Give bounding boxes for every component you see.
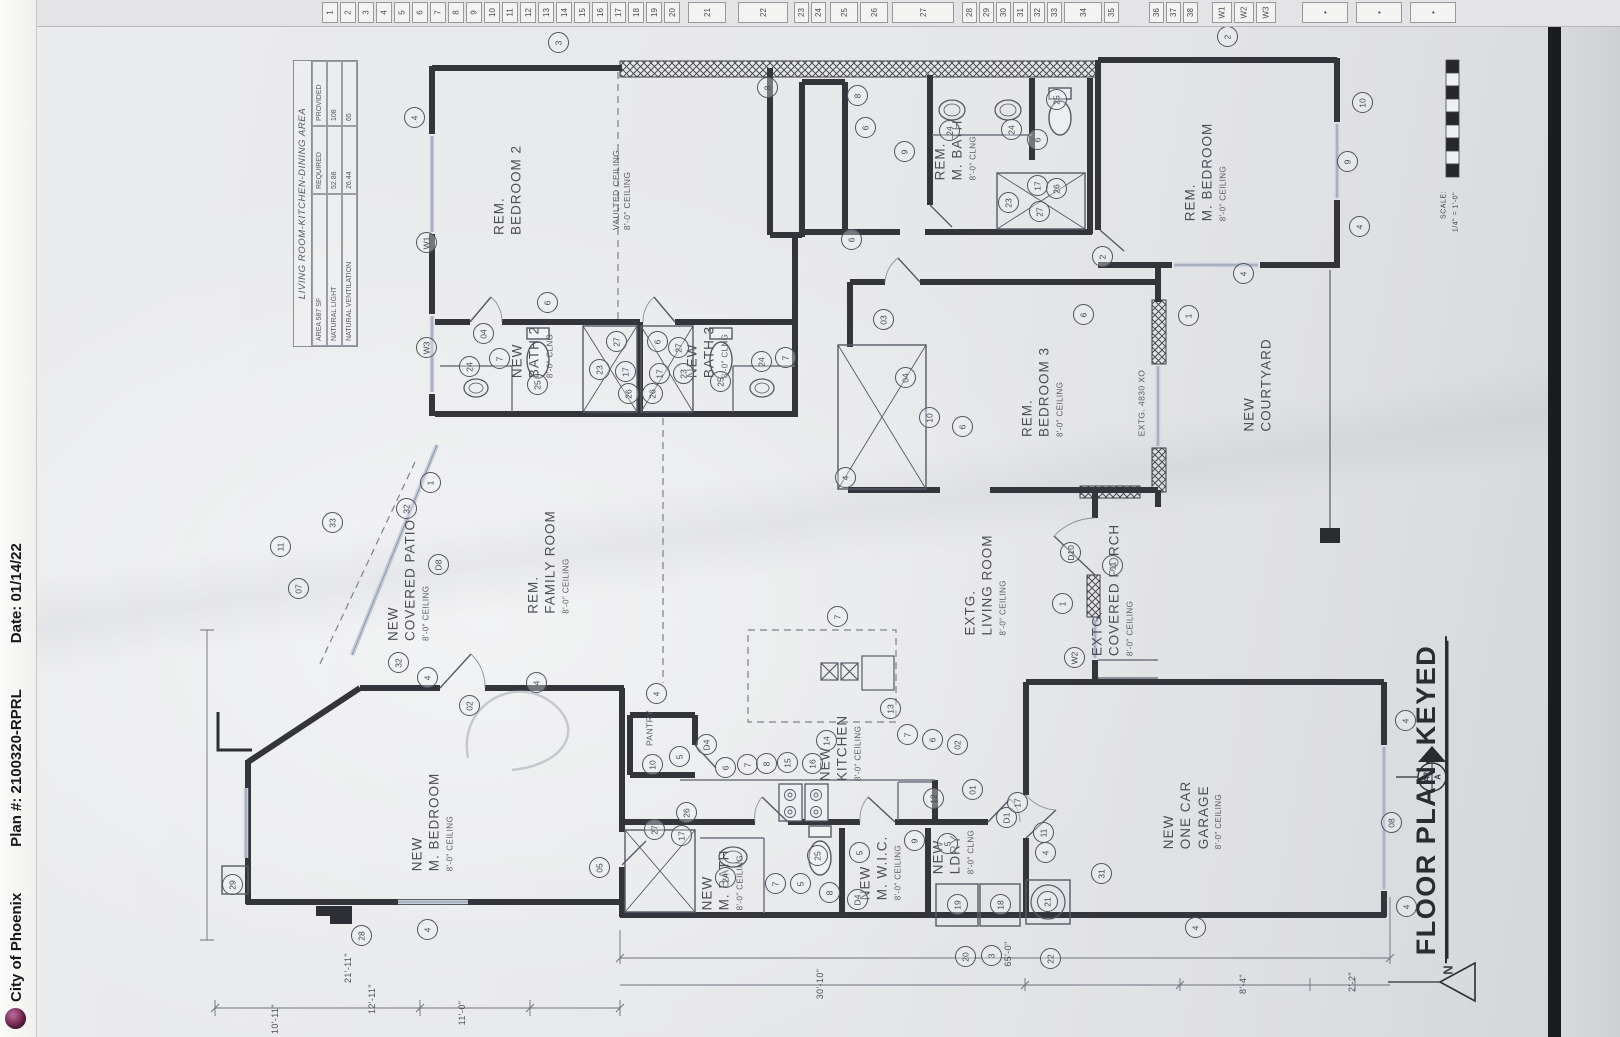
keyed-note-bubble-4: 4: [1349, 216, 1370, 237]
keyed-note-bubble-12: 12: [923, 788, 944, 809]
keyed-strip-cell: 17: [610, 2, 626, 23]
keyed-note-bubble-5: 5: [849, 842, 870, 863]
keyed-note-bubble-19: 19: [947, 894, 968, 915]
keyed-note-bubble-7: 7: [489, 348, 510, 369]
keyed-note-bubble-22: 22: [1040, 948, 1061, 969]
keyed-strip-cell: 19: [646, 2, 662, 23]
keyed-note-bubble-D4: D4: [847, 889, 868, 910]
keyed-note-bubble-6: 6: [715, 757, 736, 778]
keyed-note-bubble-25: 25: [807, 845, 828, 866]
keyed-strip-cell: W3: [1256, 2, 1276, 23]
keyed-note-bubble-D8: D8: [428, 554, 449, 575]
keyed-note-bubble-17: 17: [1027, 175, 1048, 196]
dimension-label: 8'-4": [1238, 974, 1248, 994]
keyed-note-bubble-11: 11: [270, 536, 291, 557]
keyed-note-bubble-1: 1: [420, 472, 441, 493]
room-label-extg-living-room: EXTG.LIVING ROOM8'-0" CEILING: [962, 534, 1009, 635]
room-label-new-bath-2: NEWBATH 28'-0" CLNG: [509, 326, 556, 378]
room-label-new-courtyard: NEWCOURTYARD: [1241, 338, 1276, 431]
keyed-note-bubble-2: 2: [1092, 246, 1113, 267]
keyed-note-bubble-1: 1: [1052, 593, 1073, 614]
room-label-rem-bedroom-3: REM.BEDROOM 38'-0" CEILING: [1019, 347, 1066, 437]
keyed-strip-cell: 29: [979, 2, 994, 23]
keyed-note-bubble-26: 26: [1046, 178, 1067, 199]
keyed-strip-cell: 13: [538, 2, 554, 23]
keyed-note-bubble-6: 6: [952, 416, 973, 437]
area-table-value: 52.88: [327, 126, 342, 194]
keyed-note-bubble-7: 7: [765, 873, 786, 894]
keyed-strip-cell: 2: [340, 2, 356, 23]
agency-sidebar: City of Phoenix Plan #: 2100320-RPRL Dat…: [0, 0, 37, 1037]
keyed-note-bubble-17: 17: [1007, 792, 1028, 813]
keyed-note-bubble-4: 4: [526, 672, 547, 693]
keyed-note-bubble-26: 26: [642, 383, 663, 404]
keyed-strip-cell: 7: [430, 2, 446, 23]
keyed-strip-cell: 21: [688, 2, 726, 23]
scanned-floor-plan-page: FLOOR PLAN- KEYED N A A2 SCALE: 1/4" = 1…: [0, 0, 1620, 1037]
keyed-strip-cell: •: [1356, 2, 1402, 23]
keyed-note-bubble-23: 23: [673, 363, 694, 384]
keyed-strip-cell: 26: [860, 2, 888, 23]
keyed-note-bubble-27: 27: [644, 819, 665, 840]
keyed-note-bubble-11: 11: [1102, 555, 1123, 576]
keyed-note-bubble-3: 3: [981, 945, 1002, 966]
keyed-strip-cell: •: [1410, 2, 1456, 23]
room-label-rem-m-bedroom: REM.M. BEDROOM8'-0" CEILING: [1182, 123, 1229, 222]
keyed-note-bubble-6: 6: [841, 229, 862, 250]
keyed-note-bubble-6: 6: [855, 117, 876, 138]
keyed-note-bubble-4: 4: [835, 467, 856, 488]
area-table-row-label: NATURAL VENTILATION: [342, 194, 357, 346]
agency-name: City of Phoenix: [8, 893, 25, 1002]
keyed-strip-cell: 16: [592, 2, 608, 23]
keyed-note-bubble-4: 4: [1395, 710, 1416, 731]
keyed-note-bubble-28: 28: [351, 925, 372, 946]
keyed-note-bubble-01: 01: [962, 779, 983, 800]
keyed-strip-cell: •: [1302, 2, 1348, 23]
keyed-note-bubble-6: 6: [1027, 129, 1048, 150]
keyed-strip-cell: 20: [664, 2, 680, 23]
agency-stamp-text: City of Phoenix Plan #: 2100320-RPRL Dat…: [8, 543, 25, 1002]
keyed-note-bubble-4: 4: [404, 107, 425, 128]
keyed-note-bubble-11: 11: [1033, 822, 1054, 843]
keyed-note-bubble-W1: W1: [416, 232, 437, 253]
keyed-strip-cell: 4: [376, 2, 392, 23]
keyed-strip-cell: 33: [1047, 2, 1062, 23]
keyed-strip-cell: 18: [628, 2, 644, 23]
keyed-note-bubble-6: 6: [1073, 304, 1094, 325]
keyed-note-bubble-5: 5: [937, 833, 958, 854]
keyed-note-bubble-25: 25: [1046, 89, 1067, 110]
keyed-note-bubble-02: 02: [947, 734, 968, 755]
dimension-label: 2'-2": [1347, 972, 1357, 992]
keyed-note-bubble-15: 15: [777, 752, 798, 773]
dimension-label: 10'-11": [270, 1004, 280, 1034]
section-marker-number: A2: [1423, 772, 1432, 782]
keyed-note-bubble-24: 24: [1001, 119, 1022, 140]
keyed-note-bubble-32: 32: [388, 652, 409, 673]
annotation-overlay: FLOOR PLAN- KEYED N A A2 SCALE: 1/4" = 1…: [0, 0, 1620, 1037]
keyed-note-bubble-27: 27: [606, 331, 627, 352]
room-label-rem-bedroom-2: REM.BEDROOM 2: [491, 145, 526, 235]
keyed-note-bubble-17: 17: [649, 363, 670, 384]
keyed-note-bubble-4: 4: [1035, 842, 1056, 863]
plan-number: Plan #: 2100320-RPRL: [8, 689, 25, 847]
keyed-note-bubble-7: 7: [897, 724, 918, 745]
keyed-strip-cell: 8: [448, 2, 464, 23]
dimension-label: 30'-10": [815, 969, 825, 1000]
keyed-note-bubble-8: 8: [756, 753, 777, 774]
room-label-extg-window-4830: EXTG. 4830 XO: [1137, 370, 1148, 437]
keyed-note-bubble-D10: D10: [1060, 542, 1081, 563]
keyed-strip-cell: 15: [574, 2, 590, 23]
keyed-note-bubble-24: 24: [459, 356, 480, 377]
keyed-note-bubble-10: 10: [642, 754, 663, 775]
keyed-note-bubble-D4: D4: [696, 734, 717, 755]
keyed-strip-cell: 14: [556, 2, 572, 23]
keyed-note-bubble-32: 32: [396, 498, 417, 519]
keyed-note-bubble-5: 5: [790, 873, 811, 894]
dimension-label: 12'-11": [367, 984, 377, 1014]
city-logo-icon: [5, 1008, 26, 1029]
keyed-strip-cell: 34: [1064, 2, 1102, 23]
dimension-label: 21'-11": [343, 953, 353, 983]
area-table-value: 108: [327, 61, 342, 126]
keyed-strip-cell: 32: [1030, 2, 1045, 23]
keyed-note-bubble-05: 05: [589, 857, 610, 878]
area-table-col-required: REQUIRED: [312, 126, 327, 194]
scale-value: 1/4" = 1'-0": [1453, 192, 1460, 232]
dimension-label: 11'-0": [457, 1001, 467, 1026]
keyed-note-bubble-8: 8: [757, 77, 778, 98]
keyed-note-bubble-W2: W2: [1064, 647, 1085, 668]
keyed-note-bubble-4: 4: [417, 667, 438, 688]
keyed-note-bubble-7: 7: [737, 754, 758, 775]
keyed-note-bubble-24: 24: [715, 867, 736, 888]
keyed-note-bubble-23: 23: [998, 192, 1019, 213]
keyed-note-bubble-1: 1: [1178, 305, 1199, 326]
keyed-strip-cell: 37: [1166, 2, 1181, 23]
keyed-note-bubble-17: 17: [615, 361, 636, 382]
keyed-strip-cell: W1: [1212, 2, 1232, 23]
keyed-strip-cell: 31: [1013, 2, 1028, 23]
area-table-value: 26.44: [342, 126, 357, 194]
keyed-note-bubble-33: 33: [322, 512, 343, 533]
keyed-note-bubble-04: 04: [895, 367, 916, 388]
keyed-note-bubble-02: 02: [459, 695, 480, 716]
keyed-note-bubble-6: 6: [647, 331, 668, 352]
area-table: LIVING ROOM-KITCHEN-DINING AREA AREA 587…: [293, 60, 395, 347]
keyed-strip-cell: 1: [322, 2, 338, 23]
room-label-extg-covered-porch: EXTG.COVERED PORCH8'-0" CEILING: [1089, 524, 1136, 656]
keyed-note-bubble-6: 6: [537, 292, 558, 313]
keyed-strip-cell: 3: [358, 2, 374, 23]
keyed-note-bubble-13: 13: [880, 698, 901, 719]
keyed-strip-cell: 12: [520, 2, 536, 23]
room-label-new-covered-patio: NEWCOVERED PATIO8'-0" CEILING: [385, 519, 432, 641]
keyed-strip-cell: 35: [1104, 2, 1119, 23]
scale-label: SCALE:: [1441, 191, 1448, 219]
keyed-strip-cell: 25: [830, 2, 858, 23]
area-table-row-label: NATURAL LIGHT: [327, 194, 342, 346]
keyed-strip-cell: 30: [996, 2, 1011, 23]
north-label: N: [1441, 965, 1456, 974]
keyed-note-bubble-17: 17: [671, 825, 692, 846]
section-marker-sheet: A: [1434, 774, 1443, 780]
keyed-note-bubble-2: 2: [1217, 26, 1238, 47]
drawing-title: FLOOR PLAN- KEYED: [1411, 637, 1447, 964]
keyed-note-bubble-27: 27: [1029, 201, 1050, 222]
keyed-note-bubble-04: 04: [473, 323, 494, 344]
keyed-note-bubble-4: 4: [1185, 917, 1206, 938]
keyed-notes-number-strip: 1234567891011121314151617181920212223242…: [0, 0, 1620, 27]
scan-right-margin: [1561, 26, 1620, 1037]
keyed-note-bubble-5: 5: [669, 746, 690, 767]
keyed-note-bubble-25: 25: [527, 374, 548, 395]
keyed-note-bubble-14: 14: [816, 730, 837, 751]
area-table-col-provided: PROVIDED: [312, 61, 327, 126]
area-table-title: LIVING ROOM-KITCHEN-DINING AREA: [293, 60, 311, 347]
keyed-note-bubble-10: 10: [1352, 92, 1373, 113]
area-table-value: 65: [342, 61, 357, 126]
room-label-new-one-car-garage: NEWONE CARGARAGE8'-0" CEILING: [1160, 781, 1224, 850]
keyed-note-bubble-6: 6: [922, 729, 943, 750]
keyed-note-bubble-9: 9: [904, 830, 925, 851]
keyed-strip-cell: 24: [811, 2, 826, 23]
keyed-note-bubble-4: 4: [646, 683, 667, 704]
keyed-note-bubble-4: 4: [1233, 263, 1254, 284]
keyed-note-bubble-3: 3: [548, 32, 569, 53]
keyed-note-bubble-25: 25: [710, 371, 731, 392]
keyed-strip-cell: 38: [1183, 2, 1198, 23]
keyed-note-bubble-10: 10: [919, 407, 940, 428]
keyed-note-bubble-16: 16: [802, 753, 823, 774]
keyed-strip-cell: 22: [738, 2, 788, 23]
keyed-note-bubble-29: 29: [222, 874, 243, 895]
keyed-note-bubble-23: 23: [589, 359, 610, 380]
area-table-corner: AREA 587 SF: [312, 194, 327, 346]
keyed-note-bubble-W3: W3: [416, 337, 437, 358]
dimension-label: 65'-0": [1003, 941, 1013, 966]
keyed-note-bubble-21: 21: [1037, 891, 1058, 912]
keyed-strip-cell: 9: [466, 2, 482, 23]
keyed-strip-cell: 6: [412, 2, 428, 23]
keyed-note-bubble-07: 07: [288, 578, 309, 599]
keyed-note-bubble-9: 9: [894, 141, 915, 162]
scan-border-bar: [1548, 26, 1561, 1037]
keyed-strip-cell: 23: [794, 2, 809, 23]
keyed-note-bubble-24: 24: [751, 351, 772, 372]
plan-date: Date: 01/14/22: [8, 543, 25, 643]
keyed-note-bubble-08: 08: [1381, 812, 1402, 833]
keyed-note-bubble-20: 20: [955, 946, 976, 967]
keyed-strip-cell: 28: [962, 2, 977, 23]
keyed-note-bubble-8: 8: [819, 882, 840, 903]
keyed-note-bubble-31: 31: [1091, 863, 1112, 884]
keyed-strip-cell: 5: [394, 2, 410, 23]
keyed-note-bubble-26: 26: [618, 383, 639, 404]
room-label-rem-family-room: REM.FAMILY ROOM8'-0" CEILING: [525, 510, 572, 614]
keyed-strip-cell: W2: [1234, 2, 1254, 23]
keyed-note-bubble-24: 24: [939, 120, 960, 141]
keyed-note-bubble-4: 4: [1396, 896, 1417, 917]
keyed-strip-cell: 27: [892, 2, 954, 23]
keyed-note-bubble-7: 7: [775, 347, 796, 368]
keyed-strip-cell: 36: [1149, 2, 1164, 23]
room-label-new-m-bedroom: NEWM. BEDROOM8'-0" CEILING: [409, 773, 456, 872]
room-label-vaulted-ceiling-note: VAULTED CEILING8'-0" CEILING: [611, 150, 633, 230]
keyed-note-bubble-26: 26: [676, 802, 697, 823]
keyed-note-bubble-03: 03: [873, 309, 894, 330]
keyed-note-bubble-4: 4: [417, 919, 438, 940]
keyed-note-bubble-8: 8: [847, 85, 868, 106]
keyed-note-bubble-18: 18: [990, 894, 1011, 915]
keyed-note-bubble-9: 9: [1337, 151, 1358, 172]
keyed-note-bubble-27: 27: [668, 337, 689, 358]
room-label-pantry: PANTRY: [645, 710, 656, 746]
keyed-note-bubble-7: 7: [827, 606, 848, 627]
keyed-strip-cell: 11: [502, 2, 518, 23]
keyed-strip-cell: 10: [484, 2, 500, 23]
